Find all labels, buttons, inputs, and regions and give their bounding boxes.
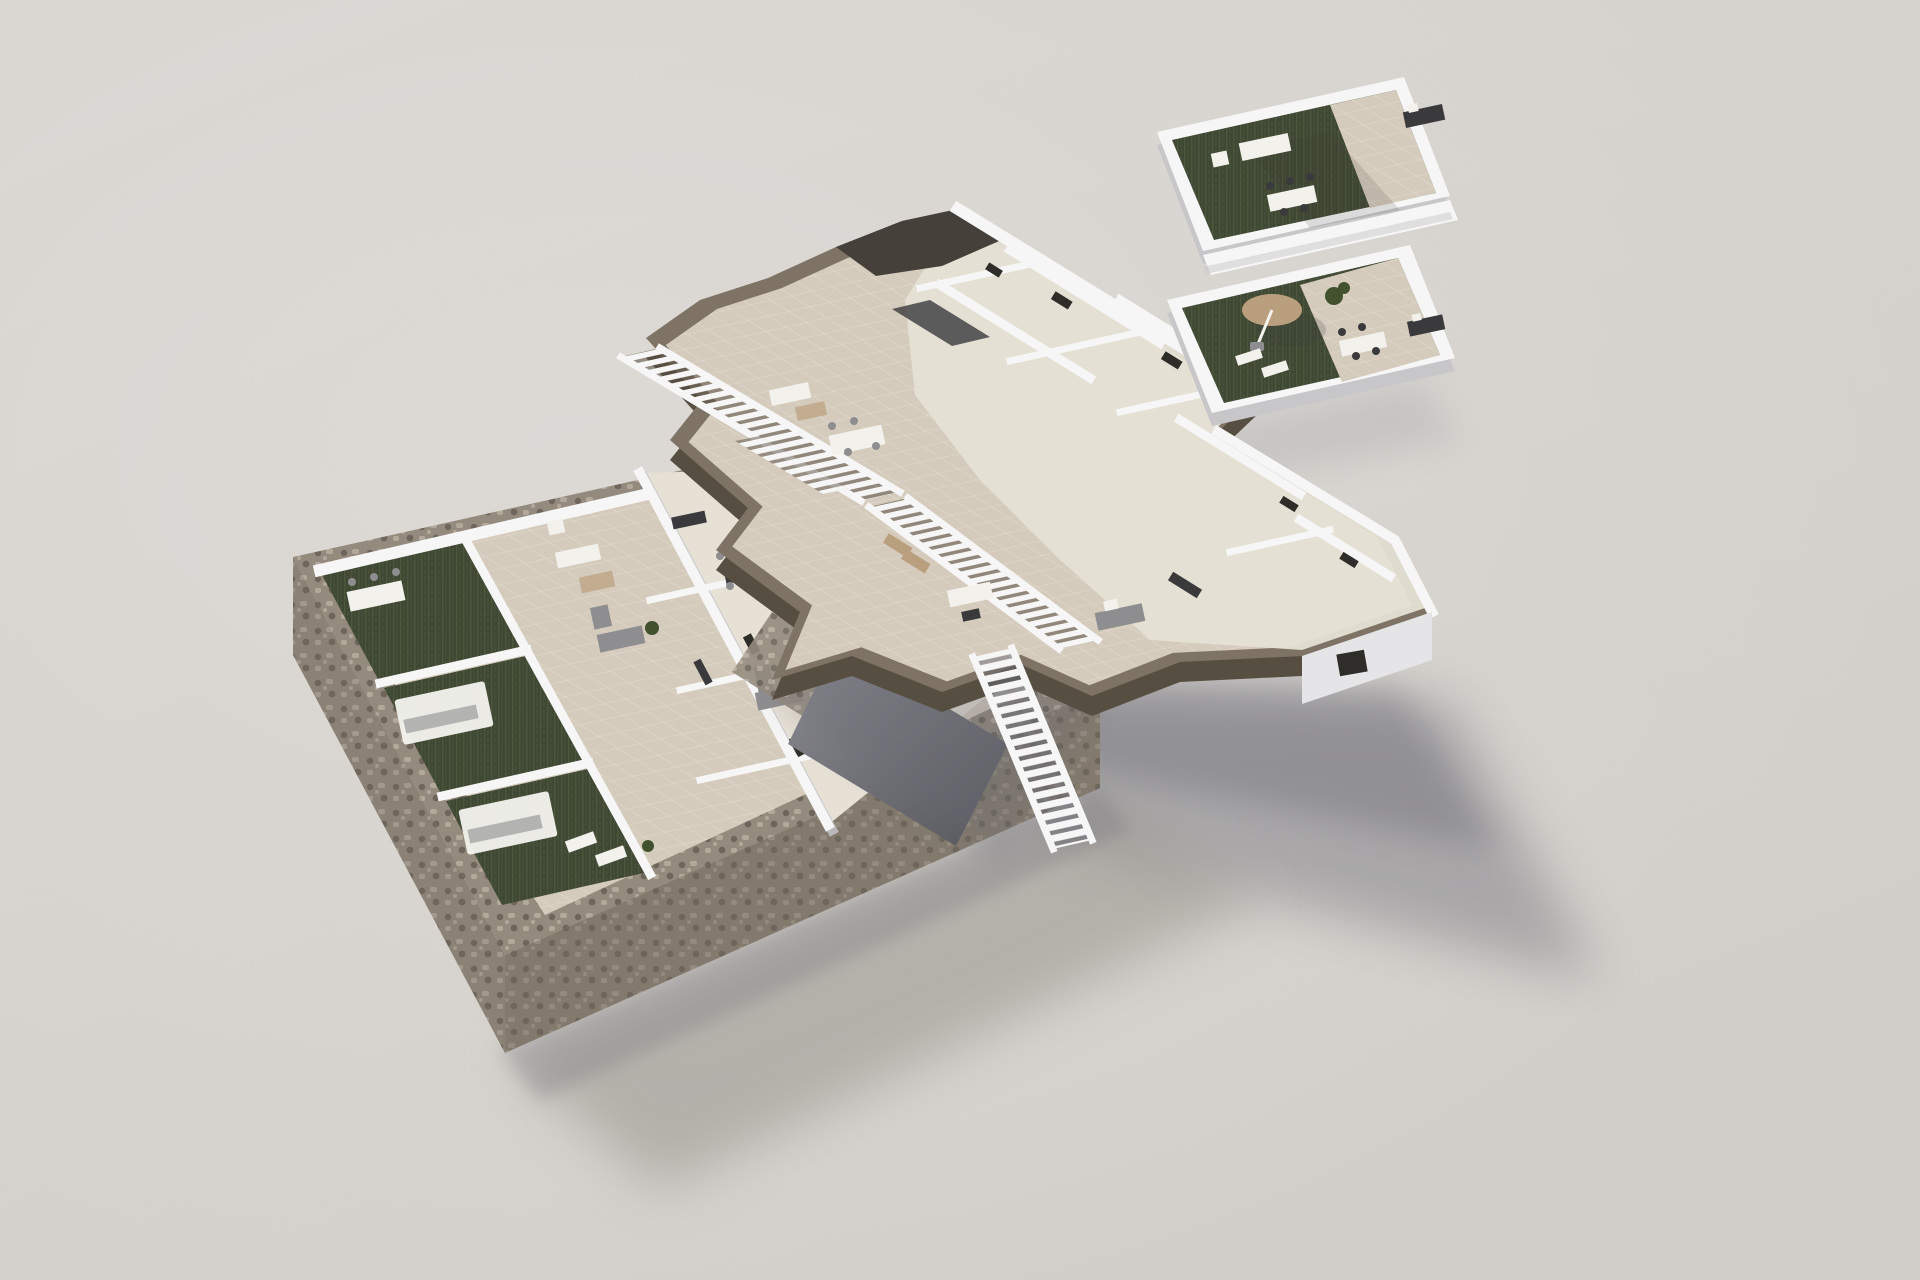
potted-plant [645,621,659,635]
potted-plant [642,840,654,852]
render-canvas [0,0,1920,1280]
dining-chair [726,582,734,590]
roof-plant [1338,282,1350,294]
